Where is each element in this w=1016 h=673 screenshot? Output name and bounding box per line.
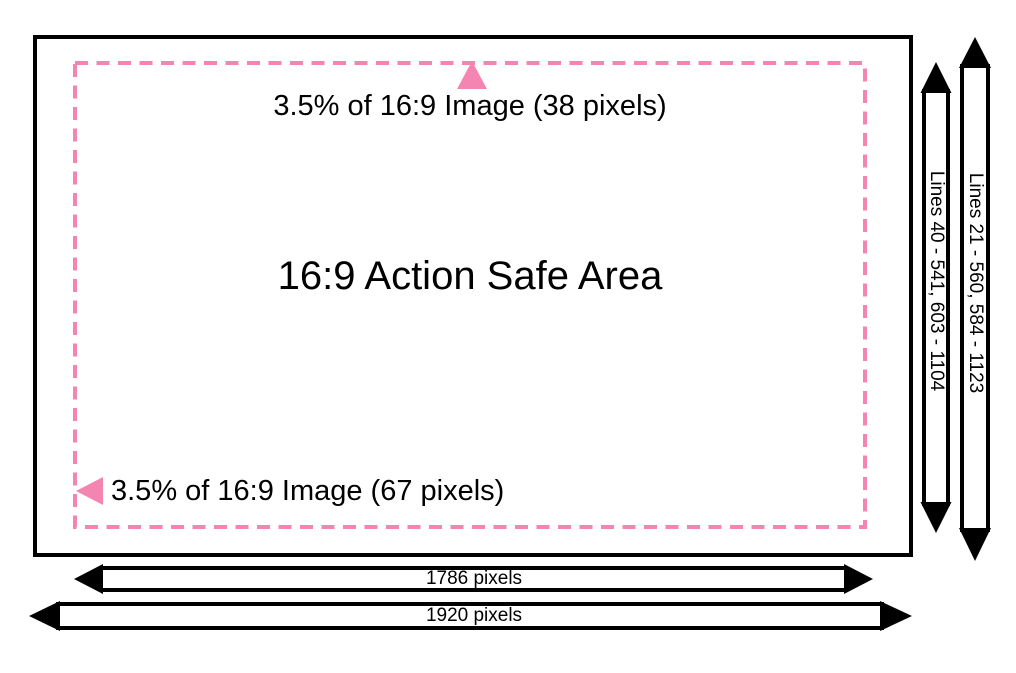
arrow-left-icon bbox=[74, 564, 103, 594]
arrow-right-icon bbox=[880, 601, 912, 631]
arrow-right-icon bbox=[844, 564, 873, 594]
left-margin-triangle-icon bbox=[76, 477, 103, 505]
arrow-left-icon bbox=[29, 601, 60, 631]
safe-area-title: 16:9 Action Safe Area bbox=[278, 255, 663, 297]
safe-area-diagram: 3.5% of 16:9 Image (38 pixels) 16:9 Acti… bbox=[0, 0, 1016, 673]
safe-height-lines-label: Lines 40 - 541, 603 - 1104 bbox=[925, 171, 947, 391]
left-margin-label: 3.5% of 16:9 Image (67 pixels) bbox=[111, 476, 504, 506]
arrow-up-icon bbox=[921, 62, 952, 93]
full-height-lines-label: Lines 21 - 560, 584 - 1123 bbox=[964, 173, 986, 393]
full-width-label: 1920 pixels bbox=[426, 606, 522, 626]
arrow-up-icon bbox=[959, 37, 991, 68]
arrow-down-icon bbox=[959, 528, 991, 561]
top-margin-triangle-icon bbox=[457, 61, 487, 89]
safe-width-label: 1786 pixels bbox=[426, 569, 522, 589]
top-margin-label: 3.5% of 16:9 Image (38 pixels) bbox=[273, 91, 666, 121]
arrow-down-icon bbox=[921, 502, 952, 533]
